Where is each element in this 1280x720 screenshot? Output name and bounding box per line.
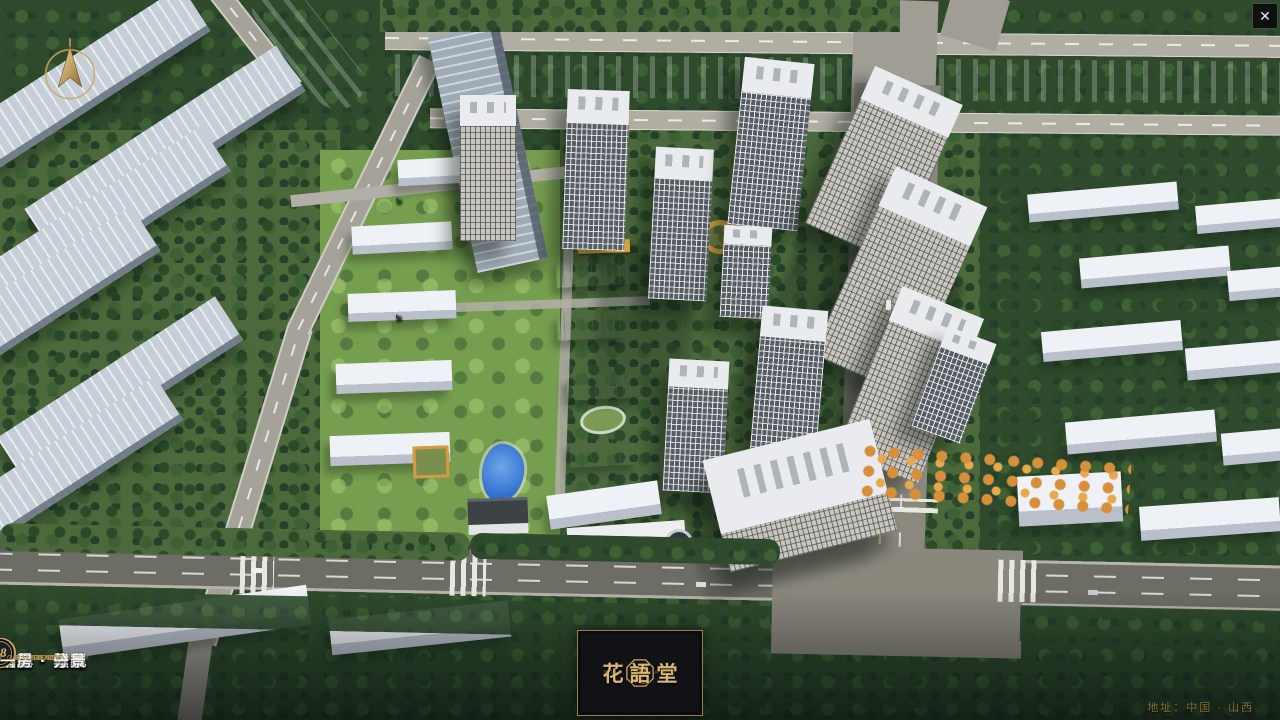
riverbank-trees bbox=[380, 0, 900, 32]
tower-facade bbox=[562, 123, 628, 251]
close-button[interactable]: ✕ bbox=[1252, 3, 1278, 29]
tower-building bbox=[460, 95, 516, 241]
midrise-building bbox=[569, 438, 638, 468]
car bbox=[696, 582, 706, 587]
orange-roof-building bbox=[412, 445, 449, 478]
tower-building bbox=[562, 89, 630, 251]
tower-roof bbox=[460, 95, 516, 126]
project-address: 地址：中国 · 山西 bbox=[1147, 699, 1254, 715]
car bbox=[886, 300, 891, 310]
river bbox=[395, 54, 1280, 104]
midrise-building bbox=[566, 373, 635, 401]
tower-facade bbox=[648, 178, 712, 301]
tower-roof bbox=[723, 225, 772, 247]
car bbox=[252, 568, 262, 573]
midrise-building bbox=[555, 256, 630, 288]
brand-plate[interactable]: 花語堂 HUA YU TANG bbox=[577, 630, 703, 716]
midrise-building bbox=[556, 311, 625, 341]
nav-caption: COMMUNITY bbox=[0, 655, 61, 663]
tower-facade bbox=[727, 92, 810, 231]
courtyard-house bbox=[396, 198, 398, 201]
tower-roof bbox=[668, 359, 729, 390]
tower-roof bbox=[567, 89, 630, 125]
brand-tagline: HUA YU TANG bbox=[603, 670, 676, 676]
close-icon: ✕ bbox=[1259, 8, 1271, 24]
courtyard-villa-cluster bbox=[396, 309, 560, 433]
courtyard-house bbox=[396, 315, 398, 318]
tower-facade bbox=[460, 126, 516, 241]
clubhouse-pavilion bbox=[467, 497, 528, 535]
compass-icon[interactable] bbox=[36, 34, 104, 106]
tower-roof bbox=[654, 147, 714, 182]
tower-building bbox=[648, 147, 714, 302]
presentation-window: ✕ o1 品牌 · 介绍BRAND SUPPORT o2 区位 · 价值LOCA… bbox=[0, 0, 1280, 720]
